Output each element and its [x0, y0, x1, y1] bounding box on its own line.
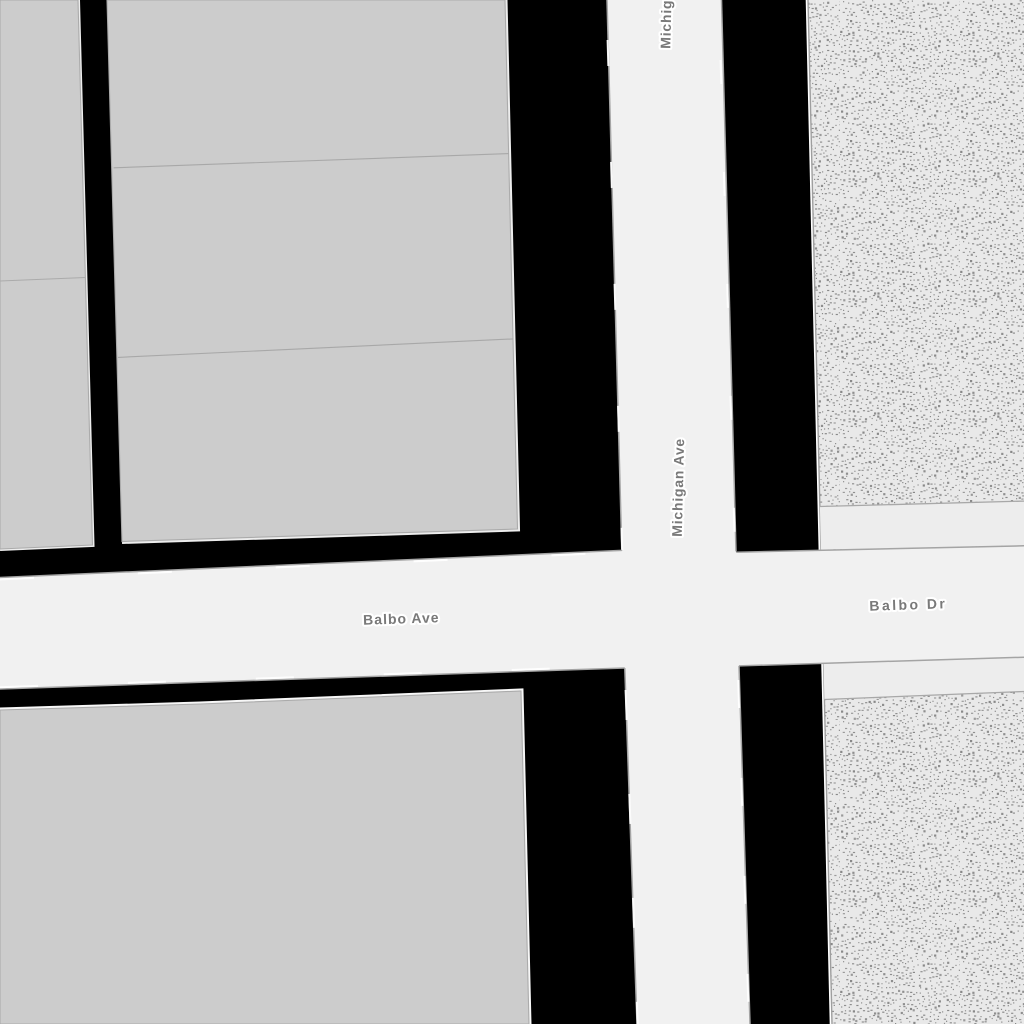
svg-text:Michigan Ave: Michigan Ave	[669, 438, 687, 537]
svg-text:Balbo Dr: Balbo Dr	[869, 595, 947, 614]
svg-text:Balbo Ave: Balbo Ave	[363, 609, 440, 628]
svg-text:Michigan Ave: Michigan Ave	[657, 0, 675, 49]
